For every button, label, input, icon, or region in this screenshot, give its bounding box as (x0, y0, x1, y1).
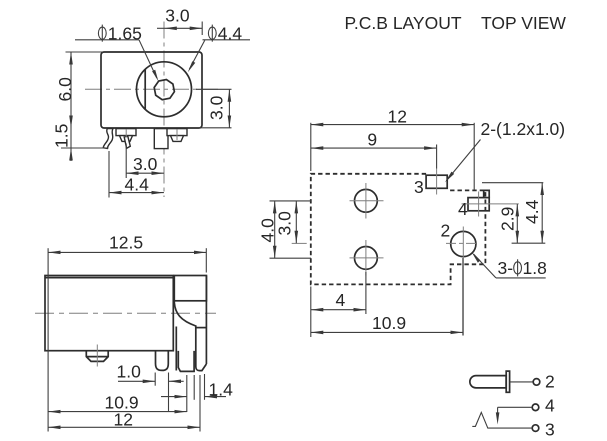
svg-text:3.0: 3.0 (165, 5, 190, 25)
svg-text:3-: 3- (498, 258, 514, 278)
svg-text:4.4: 4.4 (522, 199, 542, 224)
svg-text:1.4: 1.4 (209, 380, 234, 400)
svg-text:TOP VIEW: TOP VIEW (481, 13, 566, 33)
svg-text:4.4: 4.4 (125, 175, 150, 195)
svg-text:1.8: 1.8 (523, 258, 547, 278)
svg-text:3.0: 3.0 (207, 95, 227, 120)
svg-text:2.9: 2.9 (497, 207, 517, 231)
svg-text:12: 12 (388, 106, 407, 126)
svg-text:9: 9 (367, 130, 377, 150)
svg-text:12.5: 12.5 (109, 232, 143, 252)
svg-text:2: 2 (545, 371, 555, 391)
svg-text:P.C.B LAYOUT: P.C.B LAYOUT (345, 13, 462, 33)
svg-text:3: 3 (414, 177, 424, 197)
svg-text:4: 4 (458, 199, 468, 219)
svg-text:4: 4 (336, 290, 346, 310)
svg-text:4: 4 (545, 396, 555, 416)
svg-text:3.0: 3.0 (274, 211, 294, 236)
svg-text:10.9: 10.9 (372, 313, 406, 333)
svg-text:6.0: 6.0 (55, 77, 75, 102)
svg-text:1.5: 1.5 (52, 124, 72, 148)
svg-text:1.0: 1.0 (117, 362, 142, 382)
svg-text:2: 2 (441, 221, 451, 241)
svg-text:3: 3 (545, 420, 555, 440)
svg-text:1.65: 1.65 (108, 24, 142, 44)
svg-text:2-(1.2x1.0): 2-(1.2x1.0) (481, 119, 566, 139)
svg-text:12: 12 (114, 409, 133, 429)
svg-text:3.0: 3.0 (133, 154, 158, 174)
svg-text:4.4: 4.4 (218, 24, 243, 44)
